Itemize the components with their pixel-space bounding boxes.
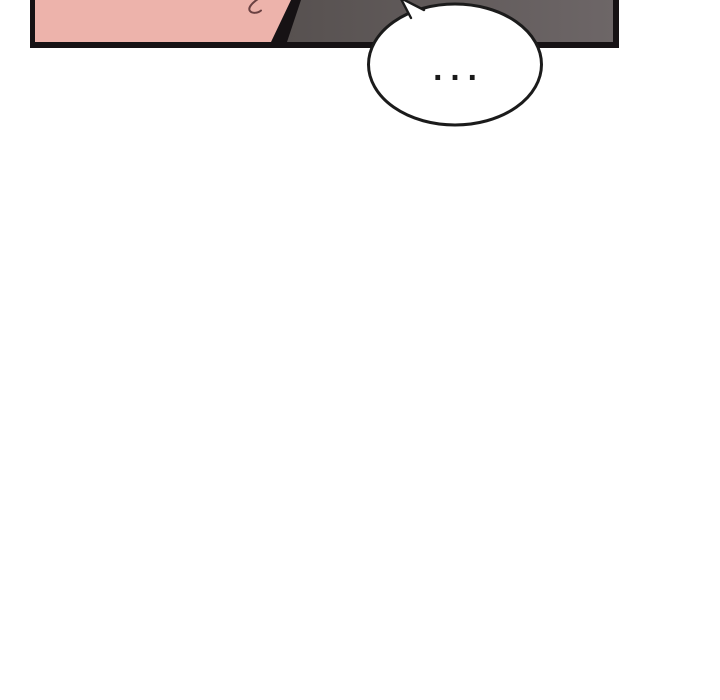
speech-bubble-text: ... <box>369 58 541 86</box>
comic-panel-artwork <box>0 0 720 140</box>
skin-area <box>35 0 291 42</box>
comic-page: ... <box>0 0 720 700</box>
